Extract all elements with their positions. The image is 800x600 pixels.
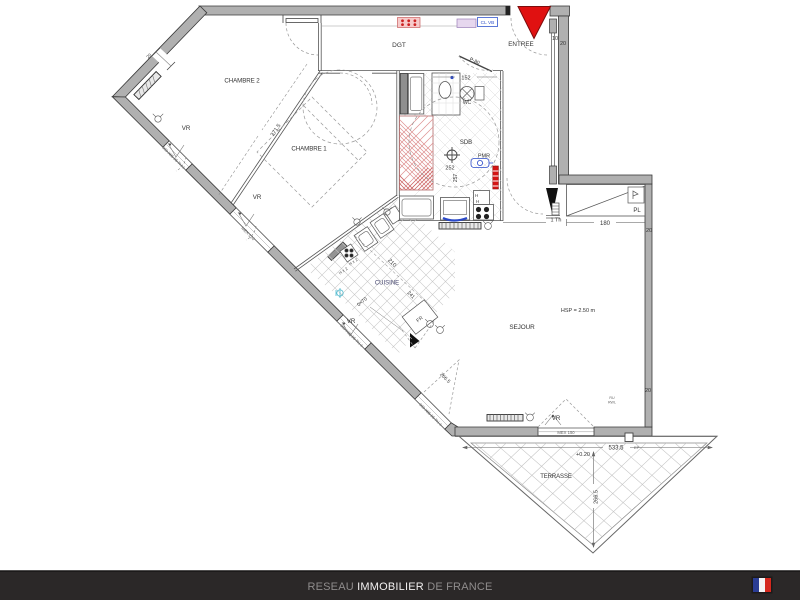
- svg-text:H: H: [475, 193, 478, 198]
- svg-text:252: 252: [445, 166, 454, 172]
- svg-text:SDB: SDB: [460, 140, 472, 146]
- svg-text:CHAMBRE 1: CHAMBRE 1: [291, 146, 327, 153]
- svg-text:DGT: DGT: [392, 42, 406, 49]
- svg-text:20: 20: [646, 228, 652, 234]
- svg-text:CUISINE: CUISINE: [375, 281, 399, 287]
- svg-text:RESEAU IMMOBILIER DE FRANCE: RESEAU IMMOBILIER DE FRANCE: [307, 581, 492, 593]
- svg-text:533.5: 533.5: [608, 446, 624, 452]
- svg-text:PMR: PMR: [478, 154, 490, 160]
- svg-text:257: 257: [453, 174, 459, 183]
- svg-text:RWL: RWL: [608, 401, 616, 405]
- svg-text:+0.20: +0.20: [576, 452, 590, 458]
- svg-text:VR: VR: [182, 125, 191, 132]
- svg-text:152: 152: [461, 76, 470, 82]
- svg-text:HSP = 2.50 m: HSP = 2.50 m: [561, 308, 596, 314]
- svg-text:EP: EP: [634, 445, 640, 450]
- svg-text:CL VB: CL VB: [481, 20, 495, 26]
- svg-text:180: 180: [600, 221, 611, 227]
- svg-text:MEX 150: MEX 150: [557, 430, 575, 435]
- svg-text:20: 20: [645, 388, 651, 394]
- svg-text:PL: PL: [633, 208, 641, 214]
- svg-text:RU: RU: [609, 396, 615, 400]
- svg-text:CHAMBRE 2: CHAMBRE 2: [224, 78, 260, 85]
- svg-text:H: H: [476, 199, 479, 204]
- svg-text:TERRASSE: TERRASSE: [540, 474, 572, 480]
- svg-text:VR: VR: [552, 415, 561, 422]
- svg-text:SEJOUR: SEJOUR: [509, 324, 535, 331]
- svg-text:20: 20: [560, 41, 566, 47]
- svg-text:VR: VR: [347, 318, 356, 325]
- svg-text:ENTREE: ENTREE: [508, 41, 534, 48]
- svg-text:VR: VR: [253, 194, 262, 201]
- svg-text:WC: WC: [463, 100, 472, 106]
- svg-text:266.5: 266.5: [594, 490, 600, 504]
- svg-text:1 Th: 1 Th: [551, 218, 562, 224]
- svg-text:10: 10: [552, 36, 558, 42]
